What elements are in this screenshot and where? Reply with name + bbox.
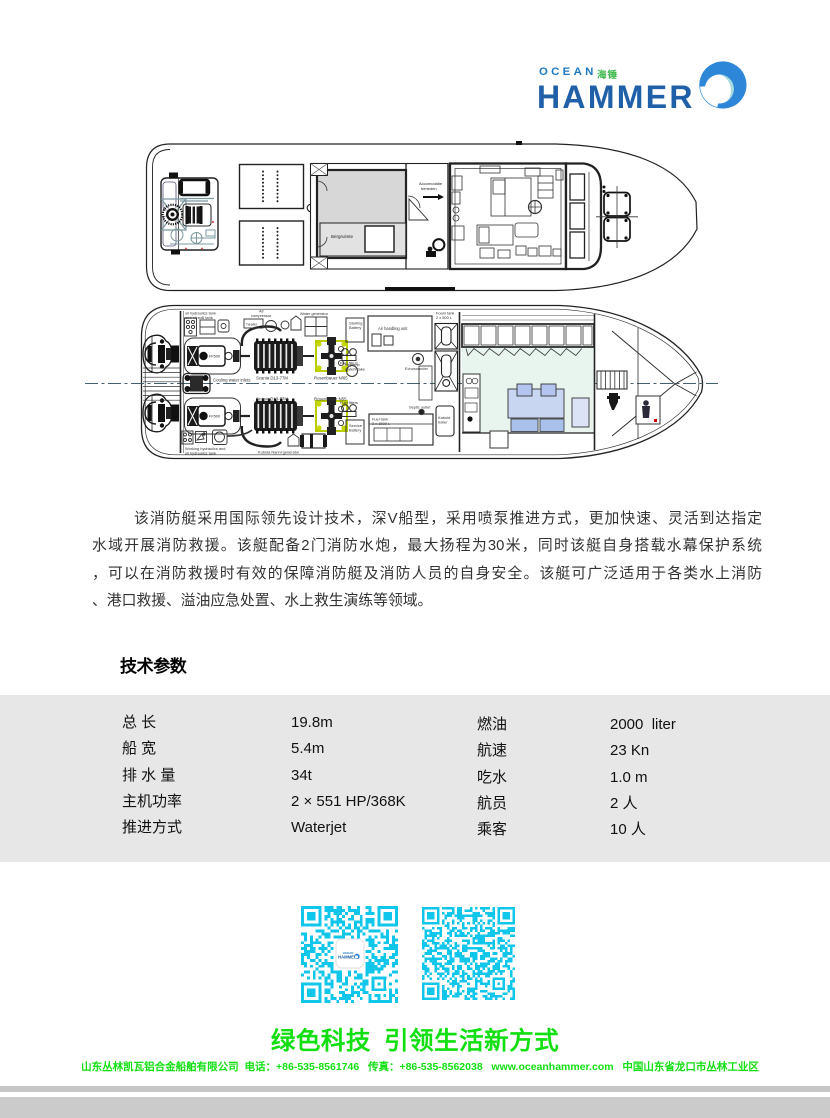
svg-text:FF500: FF500 xyxy=(209,415,220,419)
svg-text:Water generator: Water generator xyxy=(300,311,329,316)
svg-text:Bergruimte: Bergruimte xyxy=(331,234,354,239)
svg-text:Rosenbauer N/65: Rosenbauer N/65 xyxy=(314,376,348,381)
svg-text:oil hydraulics tank: oil hydraulics tank xyxy=(185,451,216,456)
svg-text:FF500: FF500 xyxy=(209,355,220,359)
svg-text:Cooling water inlets: Cooling water inlets xyxy=(213,378,251,383)
svg-text:compressor: compressor xyxy=(251,313,272,318)
svg-text:Battery: Battery xyxy=(349,428,361,433)
svg-text:Scania D13-77M: Scania D13-77M xyxy=(256,376,288,381)
svg-text:2 x 1500 L: 2 x 1500 L xyxy=(372,421,391,426)
svg-text:heater: heater xyxy=(247,323,259,327)
svg-text:HAMMER: HAMMER xyxy=(338,955,357,960)
svg-text:Fuel filters: Fuel filters xyxy=(340,400,358,405)
svg-text:and oil spill tank: and oil spill tank xyxy=(185,315,213,320)
svg-text:Scania D13-77M: Scania D13-77M xyxy=(256,397,288,402)
svg-text:boiler: boiler xyxy=(438,420,448,425)
svg-text:2 x 500 L: 2 x 500 L xyxy=(436,315,453,320)
svg-text:Battery: Battery xyxy=(349,325,361,330)
svg-text:Echosounder: Echosounder xyxy=(405,366,429,371)
svg-text:waterintake: waterintake xyxy=(345,367,365,372)
svg-text:Kubota Nanni generator: Kubota Nanni generator xyxy=(258,450,300,455)
svg-text:beneden: beneden xyxy=(421,186,437,191)
svg-text:Air handling unit: Air handling unit xyxy=(378,326,408,331)
svg-text:Septic outlet: Septic outlet xyxy=(409,405,431,410)
